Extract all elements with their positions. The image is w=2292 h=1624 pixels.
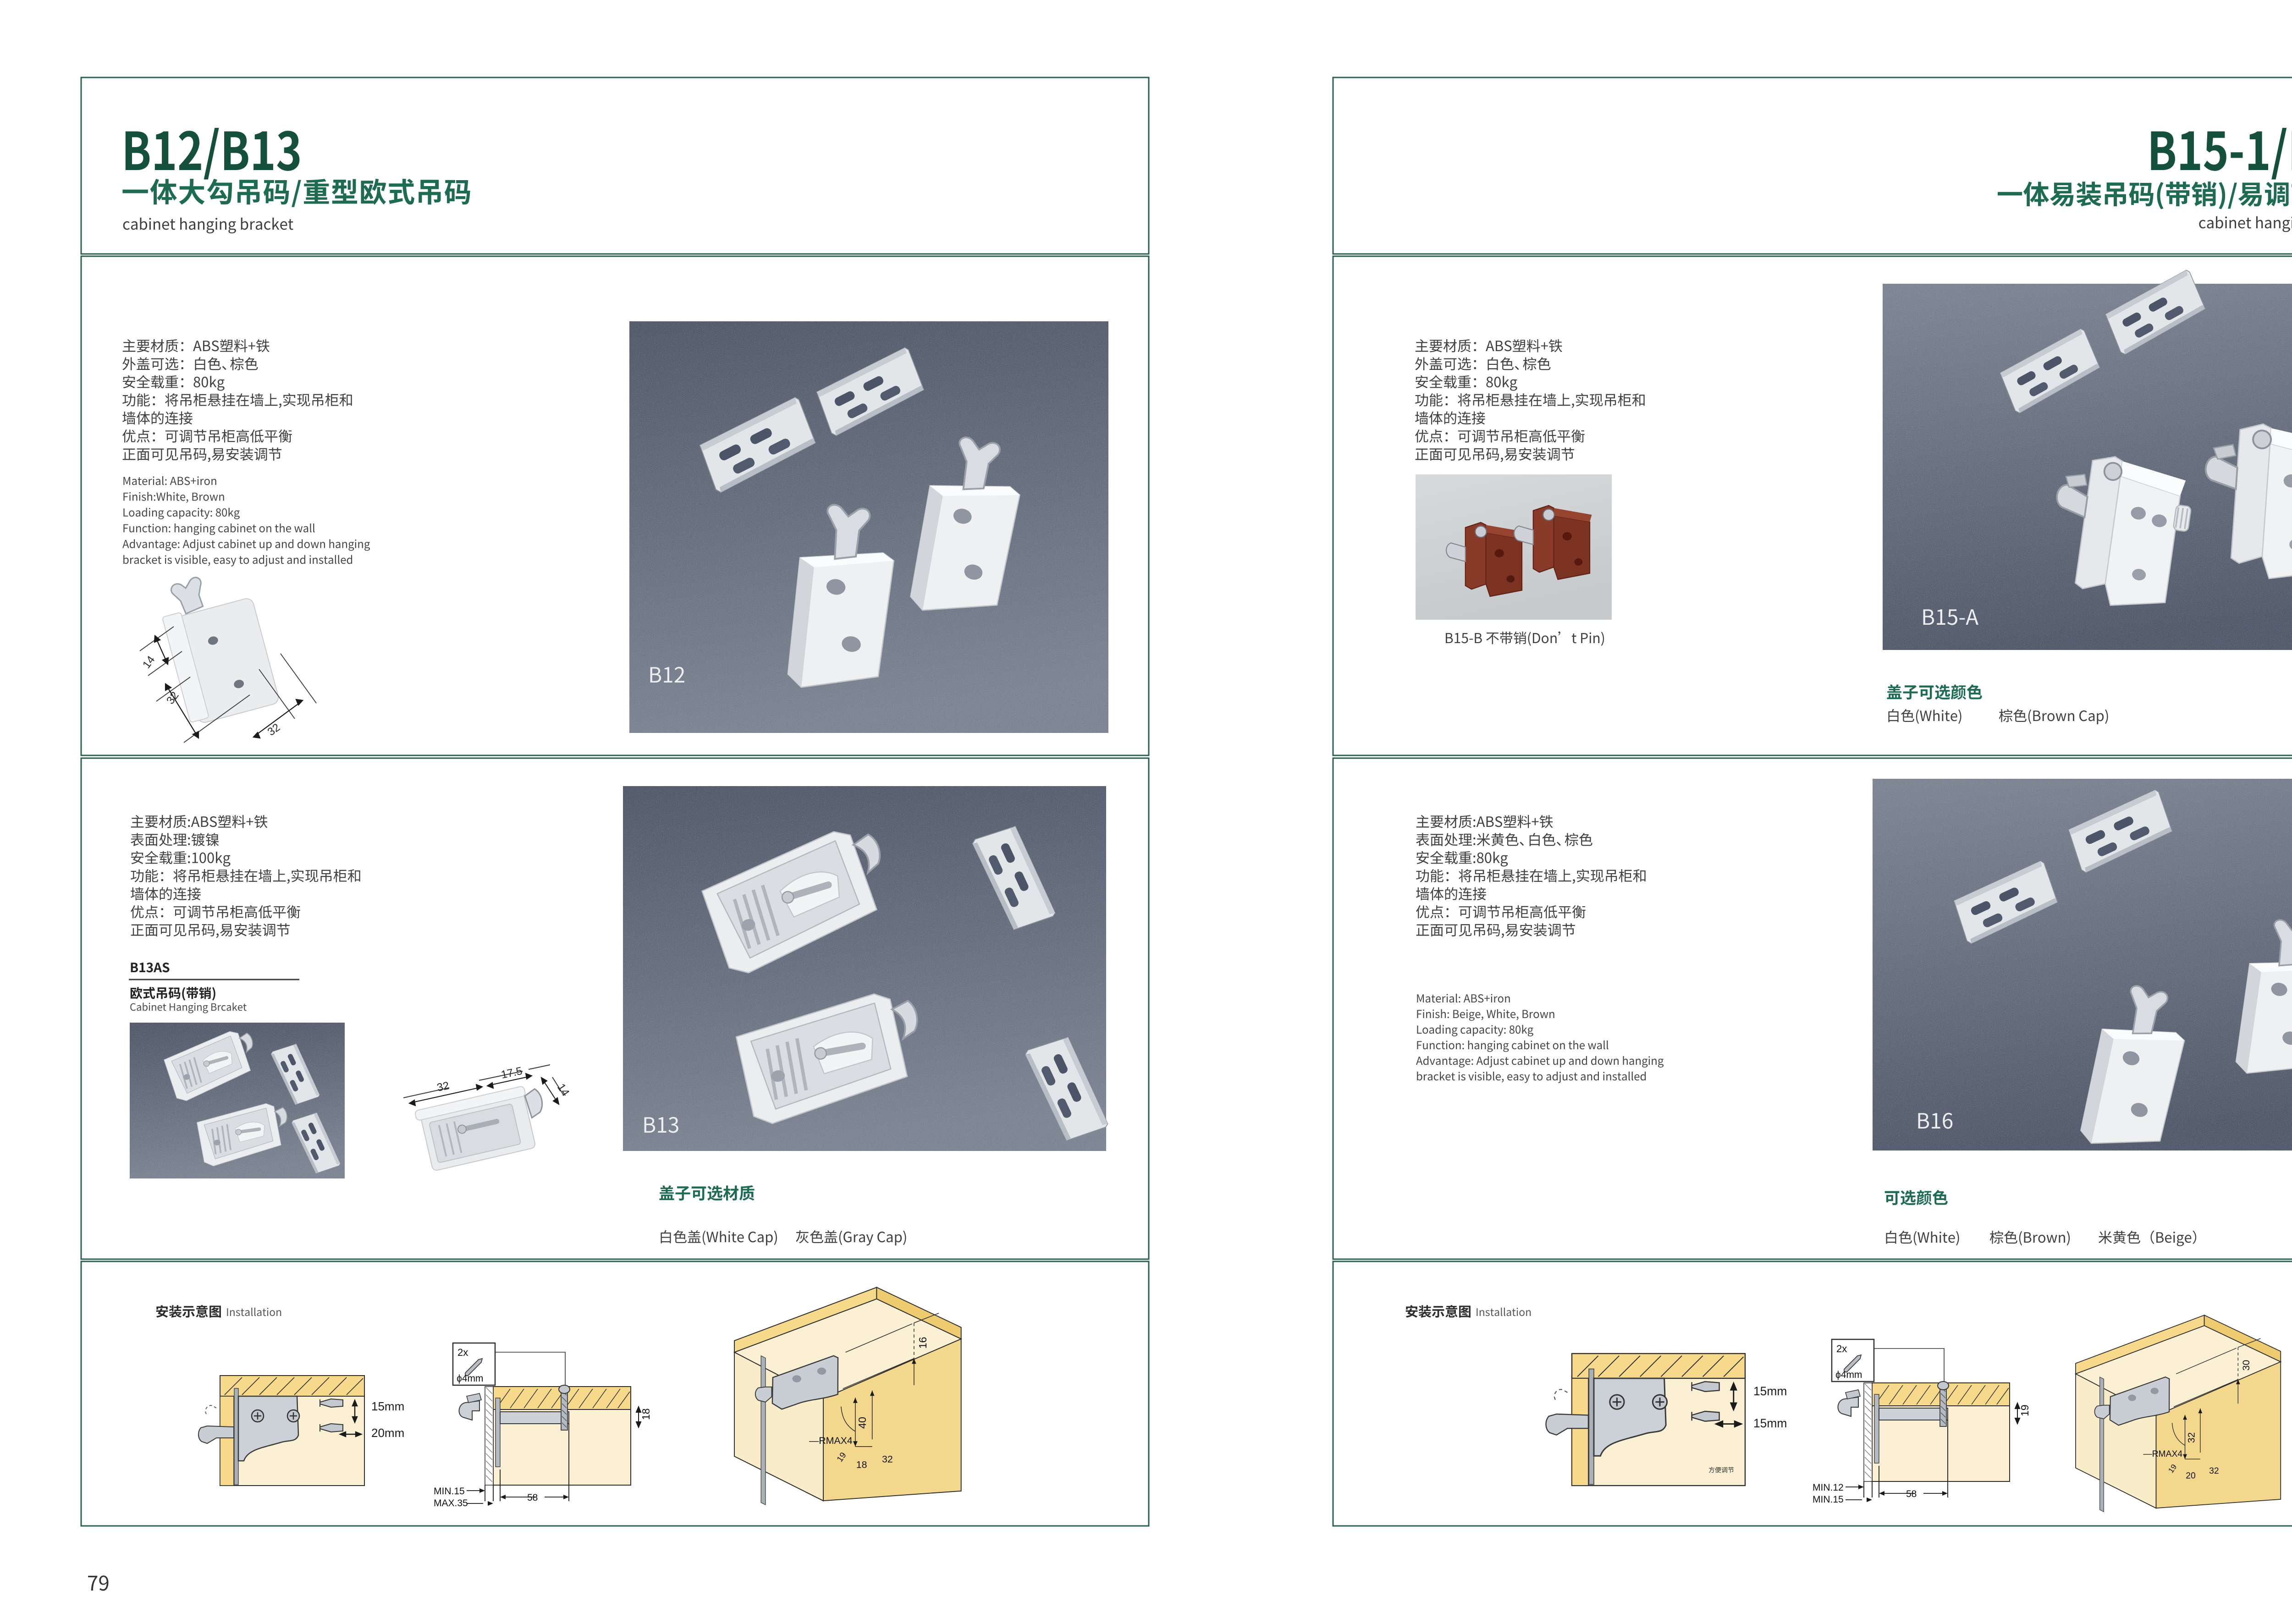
svg-text:MAX.35: MAX.35 [434,1498,468,1508]
svg-text:MIN.12: MIN.12 [1813,1482,1844,1493]
svg-text:58: 58 [1906,1489,1917,1499]
svg-text:32: 32 [2187,1432,2197,1443]
svg-text:19: 19 [2019,1404,2031,1416]
svg-text:32: 32 [882,1454,893,1465]
svg-text:MIN.15: MIN.15 [434,1486,465,1497]
svg-text:2x: 2x [1836,1343,1847,1354]
svg-text:14: 14 [555,1081,572,1098]
svg-text:40: 40 [856,1417,868,1429]
svg-text:30: 30 [2241,1360,2252,1371]
svg-text:—RMAX4: —RMAX4 [809,1435,853,1446]
svg-text:ϕ4mm: ϕ4mm [457,1373,483,1384]
svg-text:—RMAX4: —RMAX4 [2143,1449,2182,1459]
svg-text:32: 32 [436,1079,451,1094]
svg-text:15mm: 15mm [371,1399,404,1413]
svg-text:18: 18 [640,1408,652,1420]
svg-text:20mm: 20mm [371,1426,404,1440]
svg-text:15mm: 15mm [1753,1384,1787,1398]
svg-text:2x: 2x [457,1347,468,1358]
svg-text:18: 18 [856,1459,867,1470]
svg-text:32: 32 [265,721,282,738]
svg-text:16: 16 [917,1337,929,1349]
svg-text:32: 32 [164,689,182,706]
svg-text:15mm: 15mm [1753,1416,1787,1430]
svg-text:14: 14 [140,654,158,671]
svg-text:58: 58 [527,1492,538,1503]
svg-text:ϕ4mm: ϕ4mm [1835,1370,1862,1380]
svg-text:MIN.15: MIN.15 [1813,1494,1844,1505]
svg-text:20: 20 [2186,1471,2195,1481]
svg-text:32: 32 [2209,1466,2219,1476]
